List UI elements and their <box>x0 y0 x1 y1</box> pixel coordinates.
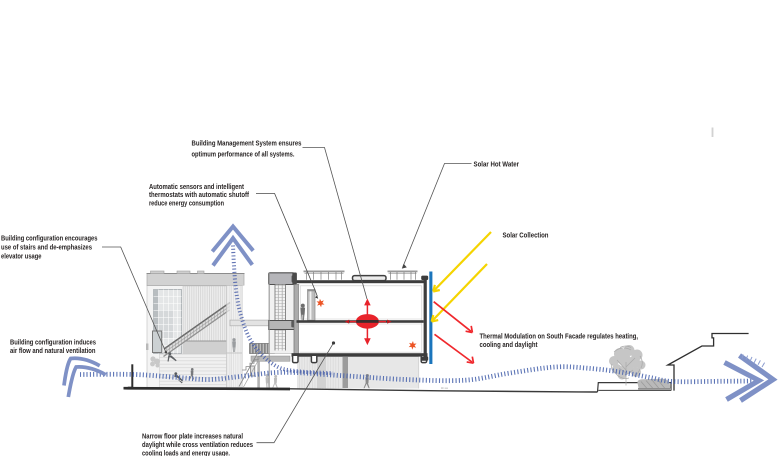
svg-text:Building configuration induces: Building configuration induces <box>10 338 96 346</box>
svg-text:optimum performance of all sys: optimum performance of all systems. <box>192 150 295 158</box>
svg-text:use of stairs and de-emphasize: use of stairs and de-emphasizes <box>1 243 92 251</box>
svg-text:Thermal Modulation on South Fa: Thermal Modulation on South Facade regul… <box>480 332 639 340</box>
svg-text:daylight while cross ventilati: daylight while cross ventilation reduces <box>142 441 253 449</box>
svg-text:reduce energy consumption: reduce energy consumption <box>149 199 224 207</box>
svg-text:air flow and natural ventilati: air flow and natural ventilation <box>10 347 96 355</box>
svg-text:cooling loads and energy usage: cooling loads and energy usage. <box>142 449 230 456</box>
svg-text:Building configuration encoura: Building configuration encourages <box>1 235 98 243</box>
svg-text:Solar Collection: Solar Collection <box>503 231 549 239</box>
svg-text:elevator usage: elevator usage <box>1 252 42 260</box>
svg-text:Narrow floor plate increases n: Narrow floor plate increases natural <box>142 432 243 440</box>
svg-text:Solar Hot Water: Solar Hot Water <box>474 160 520 168</box>
svg-text:Building Management System ens: Building Management System ensures <box>192 140 302 148</box>
svg-text:Automatic sensors and intellig: Automatic sensors and intelligent <box>149 183 245 191</box>
svg-text:thermostats with automatic shu: thermostats with automatic shutoff <box>149 191 250 199</box>
svg-text:cooling and daylight: cooling and daylight <box>480 341 539 349</box>
